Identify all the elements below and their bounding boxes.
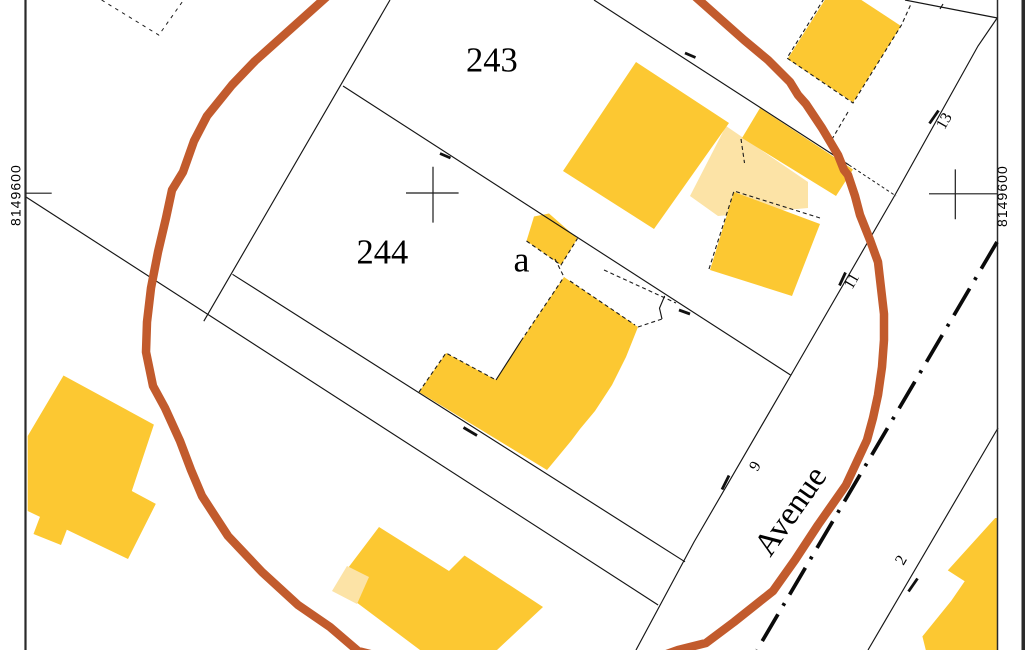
svg-text:8149600: 8149600	[994, 165, 1010, 227]
svg-text:a: a	[514, 240, 530, 280]
svg-text:8149600: 8149600	[8, 164, 24, 226]
svg-text:244: 244	[357, 234, 409, 272]
svg-text:243: 243	[466, 42, 518, 80]
